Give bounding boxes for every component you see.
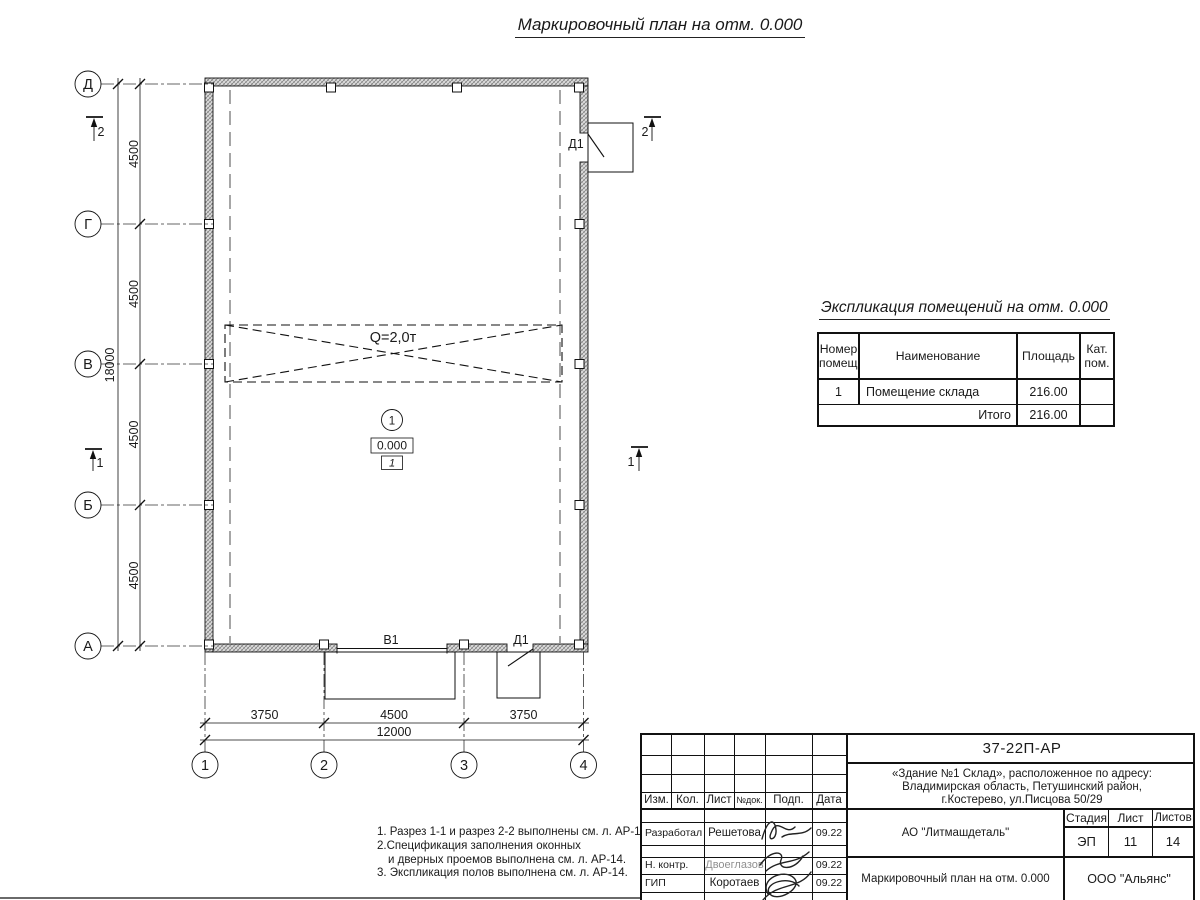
axis-row-a: А xyxy=(83,639,93,655)
room-floor-tag: 1 xyxy=(389,458,395,470)
room-area-cell: 216.00 xyxy=(1017,379,1080,405)
wall-column-marks xyxy=(205,83,585,649)
drawing-sheet: Q=2,0т xyxy=(0,0,1200,900)
dim-bottom-1: 3750 xyxy=(251,708,279,722)
col-header-number: Номер помещ. xyxy=(818,333,859,379)
note-line: 1. Разрез 1-1 и разрез 2-2 выполнены см.… xyxy=(377,826,650,840)
tb-sheet-name: Маркировочный план на отм. 0.000 xyxy=(848,856,1063,900)
tb-role-developer: Разработал xyxy=(645,822,705,845)
axis-bubble-labels: Д Г В Б А 1 2 3 4 xyxy=(83,77,587,774)
room-number-cell: 1 xyxy=(818,379,859,405)
tb-col-list: Лист xyxy=(704,792,734,808)
dim-bottom-2: 4500 xyxy=(380,708,408,722)
table-row: 1 Помещение склада 216.00 xyxy=(818,379,1114,405)
explication-block: Экспликация помещений на отм. 0.000 Номе… xyxy=(817,299,1115,427)
door-bottom-label: Д1 xyxy=(513,633,528,647)
axis-row-v: В xyxy=(83,357,93,373)
tb-role-gip: ГИП xyxy=(645,874,705,892)
room-elevation: 0.000 xyxy=(377,439,407,453)
col-header-name: Наименование xyxy=(859,333,1017,379)
gate-label: В1 xyxy=(383,633,398,647)
total-area-cell: 216.00 xyxy=(1017,405,1080,427)
axis-row-g: Г xyxy=(84,217,92,233)
crane-rail-lines xyxy=(230,90,560,643)
section-1-digit: 1 xyxy=(97,456,104,470)
dim-bottom-3: 3750 xyxy=(510,708,538,722)
tb-address-line-1: «Здание №1 Склад», расположенное по адре… xyxy=(847,767,1197,781)
title-block: Изм. Кол. Лист №док. Подп. Дата Разработ… xyxy=(640,733,1195,900)
room-number: 1 xyxy=(389,416,395,428)
room-name-cell: Помещение склада xyxy=(859,379,1017,405)
axis-row-d: Д xyxy=(83,77,93,93)
col-header-area: Площадь xyxy=(1017,333,1080,379)
tb-sheet-number: 11 xyxy=(1109,828,1152,856)
door-top-label: Д1 xyxy=(568,137,583,151)
section-marker-1-right: 1 xyxy=(628,447,648,471)
signature-gip xyxy=(763,872,811,900)
axis-col-3: 3 xyxy=(460,758,468,774)
explication-table: Номер помещ. Наименование Площадь Кат. п… xyxy=(817,332,1115,427)
axis-col-2: 2 xyxy=(320,758,328,774)
door-swings xyxy=(508,134,604,666)
tb-sheet-header: Лист xyxy=(1109,810,1152,826)
dim-bottom-total: 12000 xyxy=(377,725,412,739)
page-title-text: Маркировочный план на отм. 0.000 xyxy=(515,15,806,38)
tb-stage-value: ЭП xyxy=(1065,828,1108,856)
notes-block: 1. Разрез 1-1 и разрез 2-2 выполнены см.… xyxy=(377,826,650,881)
total-row: Итого 216.00 xyxy=(818,405,1114,427)
section-1-digit: 1 xyxy=(628,455,635,469)
tb-organization: АО "Литмашдеталь" xyxy=(848,810,1063,856)
section-2-digit: 2 xyxy=(642,125,649,139)
note-line: 3. Экспликация полов выполнена см. л. АР… xyxy=(377,867,650,881)
total-label-cell: Итого xyxy=(818,405,1017,427)
tb-sheets-header: Листов xyxy=(1153,810,1193,826)
crane-capacity-label: Q=2,0т xyxy=(370,330,417,346)
signatures xyxy=(754,809,824,900)
explication-title: Экспликация помещений на отм. 0.000 xyxy=(819,299,1110,320)
note-line: и дверных проемов выполнена см. л. АР-14… xyxy=(377,854,650,868)
dim-left-2: 4500 xyxy=(127,280,141,308)
tb-col-data: Дата xyxy=(812,792,846,808)
axis-col-1: 1 xyxy=(201,758,209,774)
total-category-cell xyxy=(1080,405,1114,427)
room-marker: 1 0.000 1 xyxy=(371,410,413,470)
dim-left-3: 4500 xyxy=(127,421,141,449)
dim-left-total: 18000 xyxy=(103,348,117,383)
room-category-cell xyxy=(1080,379,1114,405)
section-marker-1-left: 1 xyxy=(85,449,104,471)
tb-col-podp: Подп. xyxy=(765,792,812,808)
tb-doc-number: 37-22П-АР xyxy=(847,735,1197,762)
section-marker-2-left: 2 xyxy=(86,117,105,141)
dim-left-4: 4500 xyxy=(127,562,141,590)
tb-col-ndok: №док. xyxy=(734,792,765,808)
signature-developer xyxy=(762,822,811,839)
section-2-digit: 2 xyxy=(98,125,105,139)
walls xyxy=(205,78,588,652)
signature-ncontrol xyxy=(760,852,809,871)
tb-col-izm: Изм. xyxy=(642,792,671,808)
tb-col-kol: Кол. xyxy=(671,792,704,808)
tb-stage-header: Стадия xyxy=(1065,810,1108,826)
tb-sheets-total: 14 xyxy=(1153,828,1193,856)
dim-left-1: 4500 xyxy=(127,140,141,168)
tb-address-line-3: г.Костерево, ул.Писцова 50/29 xyxy=(847,793,1197,807)
axis-col-4: 4 xyxy=(579,758,587,774)
explication-header-row: Номер помещ. Наименование Площадь Кат. п… xyxy=(818,333,1114,379)
tb-role-ncontrol: Н. контр. xyxy=(645,857,705,874)
section-marker-2-right: 2 xyxy=(642,117,661,141)
opening-labels: Д1 В1 Д1 xyxy=(383,137,583,647)
axis-bubbles xyxy=(75,71,597,778)
tb-address-line-2: Владимирская область, Петушинский район, xyxy=(847,780,1197,794)
axis-row-b: Б xyxy=(83,498,93,514)
tb-company: ООО "Альянс" xyxy=(1065,856,1193,900)
page-title: Маркировочный план на отм. 0.000 xyxy=(450,15,870,38)
col-header-category: Кат. пом. xyxy=(1080,333,1114,379)
note-line: 2.Спецификация заполнения оконных xyxy=(377,840,650,854)
